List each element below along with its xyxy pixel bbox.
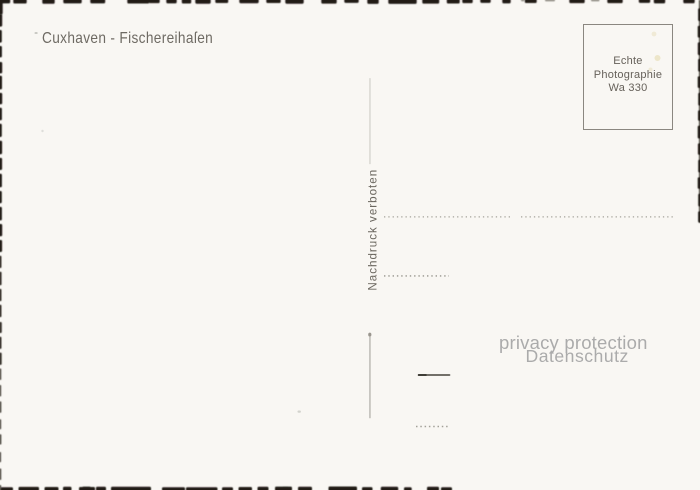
svg-text:Nachdruck verboten: Nachdruck verboten — [367, 169, 380, 291]
